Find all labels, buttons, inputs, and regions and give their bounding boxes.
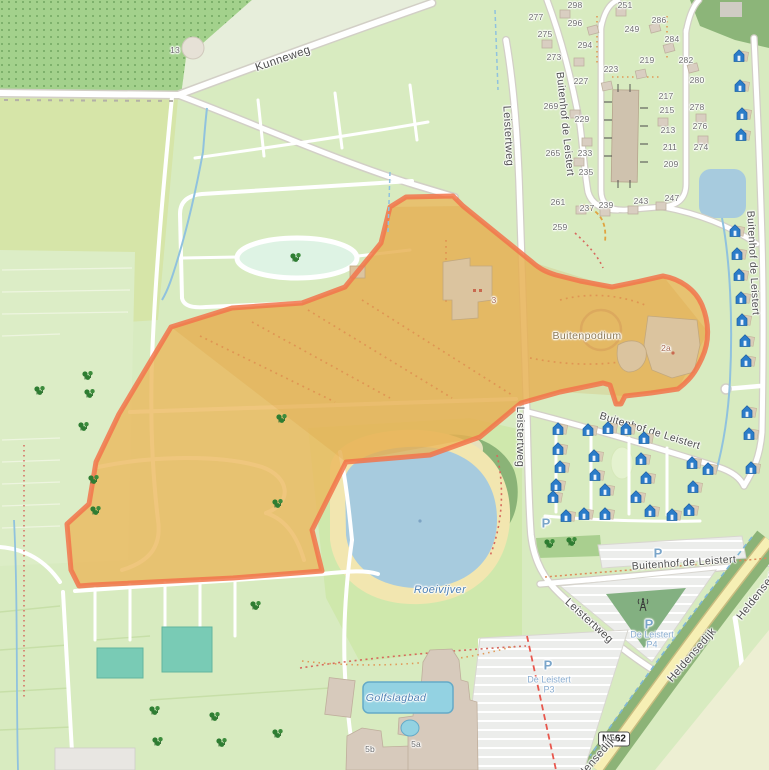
sports-pitches <box>97 627 212 678</box>
map-canvas[interactable]: N562 KunnewegLeistertwegBuitenhof de Lei… <box>0 0 769 770</box>
road-ref-badge: N562 <box>598 732 630 747</box>
map-base-layer <box>0 0 769 770</box>
